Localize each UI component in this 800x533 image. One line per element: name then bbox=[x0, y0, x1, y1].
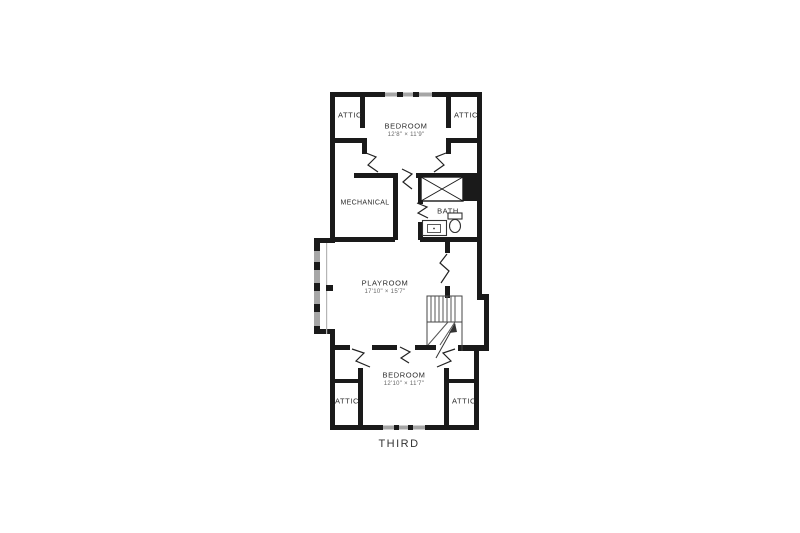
door-bedroomtop-hall bbox=[402, 169, 412, 189]
room-dims-bedroom-bottom: 12'10" × 11'7" bbox=[384, 381, 425, 387]
door-bedroomtop-closet-left bbox=[366, 153, 378, 172]
room-label-bedroom-top: BEDROOM bbox=[385, 122, 428, 131]
room-label-attic-bottom-right: ATTIC bbox=[452, 397, 476, 406]
wall-chase bbox=[463, 177, 477, 201]
door-bedroomtop-closet-right bbox=[434, 153, 446, 172]
room-dims-bedroom-top: 12'8" × 11'9" bbox=[388, 132, 425, 138]
room-dims-playroom: 17'10" × 15'7" bbox=[365, 289, 406, 295]
sink-icon bbox=[423, 221, 447, 236]
floor-plan-drawing bbox=[0, 0, 800, 533]
door-hall-bath bbox=[417, 203, 428, 218]
floor-plan-page: ATTIC ATTIC BEDROOM 12'8" × 11'9" MECHAN… bbox=[0, 0, 800, 533]
room-label-attic-bottom-left: ATTIC bbox=[335, 397, 359, 406]
door-playroom-bedroombottom bbox=[400, 347, 410, 363]
window-bottom bbox=[383, 425, 425, 430]
bathtub bbox=[421, 177, 463, 201]
floor-title: THIRD bbox=[378, 438, 419, 450]
room-label-attic-top-right: ATTIC bbox=[454, 111, 478, 120]
room-label-attic-top-left: ATTIC bbox=[338, 111, 362, 120]
room-label-bath: BATH bbox=[437, 207, 459, 216]
door-bedroombottom-left bbox=[352, 349, 370, 367]
toilet-icon bbox=[448, 213, 462, 233]
room-label-mechanical: MECHANICAL bbox=[341, 200, 390, 207]
room-label-bedroom-bottom: BEDROOM bbox=[383, 371, 426, 380]
room-label-playroom: PLAYROOM bbox=[362, 279, 409, 288]
door-playroom-stairhall bbox=[440, 254, 449, 283]
stair-direction-arrow bbox=[436, 323, 457, 358]
bay-window bbox=[314, 243, 333, 334]
window-top bbox=[385, 92, 432, 97]
